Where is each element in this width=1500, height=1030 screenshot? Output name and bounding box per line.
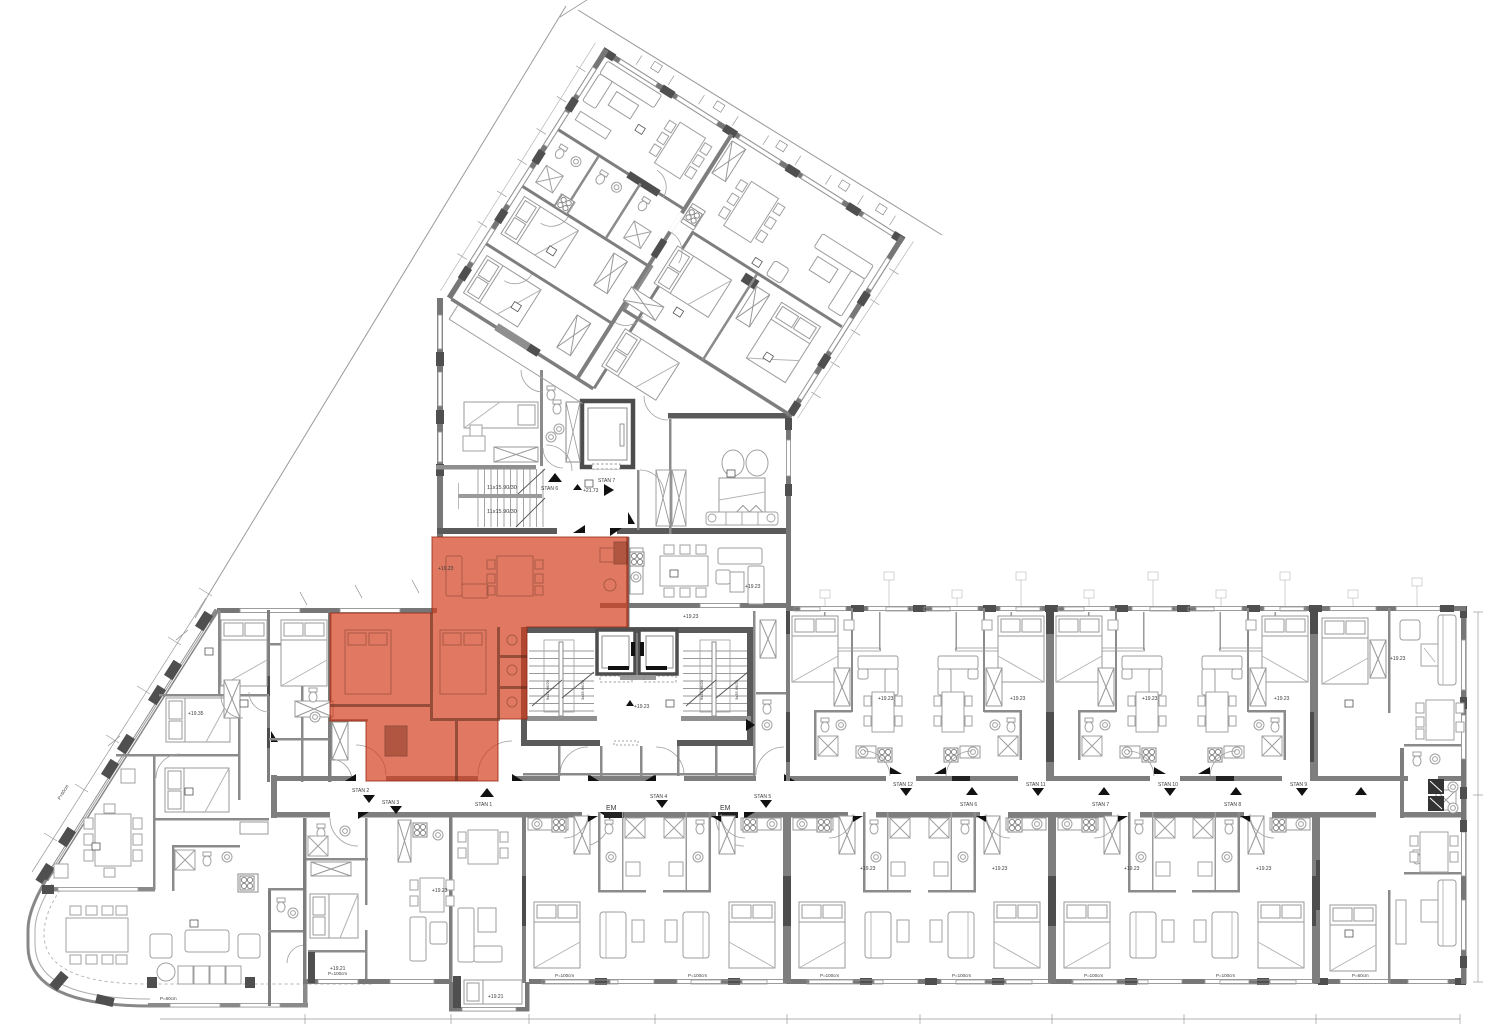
- svg-text:+19.23: +19.23: [432, 888, 448, 894]
- svg-text:EM: EM: [720, 805, 731, 812]
- svg-text:STAN 11: STAN 11: [1026, 782, 1046, 788]
- svg-text:STAN 3: STAN 3: [382, 800, 399, 806]
- svg-text:STAN 10: STAN 10: [1158, 782, 1178, 788]
- svg-text:P=100cm: P=100cm: [688, 973, 707, 978]
- svg-text:P=60cm: P=60cm: [1352, 973, 1369, 978]
- svg-text:STAN 7: STAN 7: [598, 478, 615, 484]
- svg-text:+19.23: +19.23: [634, 704, 650, 710]
- svg-text:P=100cm: P=100cm: [1084, 973, 1103, 978]
- svg-text:+19.23: +19.23: [1274, 696, 1290, 702]
- svg-text:+19.23: +19.23: [1124, 866, 1140, 872]
- svg-text:STAN 1: STAN 1: [475, 802, 492, 808]
- svg-text:+19.35: +19.35: [188, 711, 204, 717]
- svg-text:9x16.66/20: 9x16.66/20: [545, 679, 550, 700]
- svg-text:+19.23: +19.23: [878, 696, 894, 702]
- svg-text:+19.23: +19.23: [745, 584, 761, 590]
- svg-text:STAN 12: STAN 12: [893, 782, 913, 788]
- svg-text:+19.23: +19.23: [1256, 866, 1272, 872]
- svg-text:STAN 2: STAN 2: [352, 788, 369, 794]
- svg-text:+19.23: +19.23: [438, 566, 454, 572]
- svg-text:STAN 6: STAN 6: [541, 486, 558, 492]
- svg-text:+19.23: +19.23: [992, 866, 1008, 872]
- svg-text:STAN 4: STAN 4: [650, 794, 667, 800]
- svg-text:+19.23: +19.23: [1390, 656, 1406, 662]
- svg-text:+19.23: +19.23: [1010, 696, 1026, 702]
- svg-text:+19.21: +19.21: [488, 994, 504, 1000]
- svg-text:+19.23: +19.23: [683, 614, 699, 620]
- svg-text:3x35.66/20: 3x35.66/20: [734, 679, 739, 700]
- svg-text:+21.73: +21.73: [583, 488, 599, 494]
- svg-text:STAN 8: STAN 8: [1224, 802, 1241, 808]
- svg-text:STAN 6: STAN 6: [960, 802, 977, 808]
- svg-text:STAN 9: STAN 9: [1290, 782, 1307, 788]
- svg-text:P=100cm: P=100cm: [1216, 973, 1235, 978]
- svg-text:STAN 5: STAN 5: [754, 794, 771, 800]
- svg-text:P=100cm: P=100cm: [820, 973, 839, 978]
- svg-text:P=100cm: P=100cm: [555, 973, 574, 978]
- svg-text:P=100cm: P=100cm: [952, 973, 971, 978]
- svg-text:P=60cm: P=60cm: [160, 996, 177, 1001]
- svg-text:3x35.66/20: 3x35.66/20: [580, 679, 585, 700]
- svg-text:11x15.90/30: 11x15.90/30: [487, 485, 517, 491]
- svg-text:EM: EM: [606, 805, 617, 812]
- svg-text:+19.23: +19.23: [1142, 696, 1158, 702]
- svg-text:+19.23: +19.23: [860, 866, 876, 872]
- svg-text:11x15.90/30: 11x15.90/30: [487, 509, 517, 515]
- svg-text:STAN 7: STAN 7: [1092, 802, 1109, 808]
- svg-text:P=100cm: P=100cm: [328, 971, 347, 976]
- svg-text:9x16.66/20: 9x16.66/20: [699, 679, 704, 700]
